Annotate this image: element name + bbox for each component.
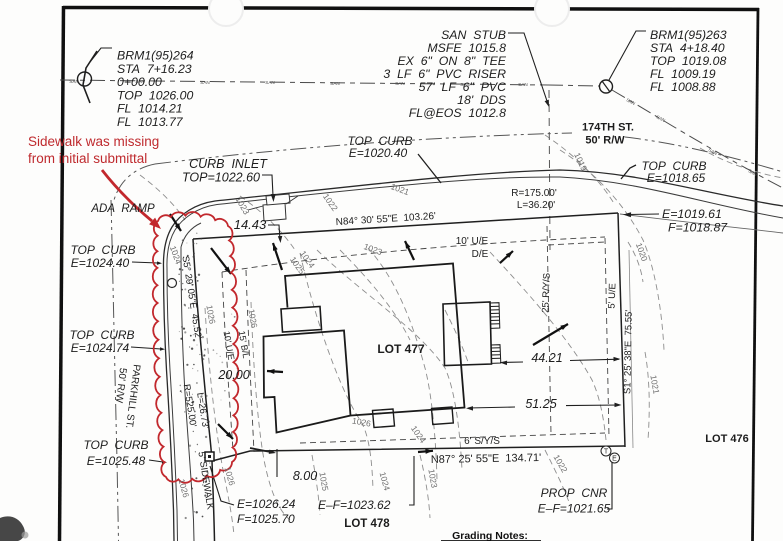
svg-text:T: T — [604, 449, 609, 456]
svg-text:Sidewalk was missing: Sidewalk was missing — [28, 134, 159, 149]
svg-text:EX 6" ON 8" TEE: EX 6" ON 8" TEE — [397, 54, 506, 68]
svg-text:TOP CURB: TOP CURB — [70, 243, 135, 257]
svg-text:SAN: SAN — [395, 81, 404, 86]
svg-text:174TH ST.: 174TH ST. — [582, 122, 634, 134]
svg-text:from initial submittal: from initial submittal — [28, 151, 147, 166]
svg-text:LOT 476: LOT 476 — [705, 433, 748, 445]
svg-text:R=175.00': R=175.00' — [511, 188, 557, 199]
svg-text:SAN: SAN — [518, 82, 527, 87]
svg-text:TOP CURB: TOP CURB — [69, 328, 134, 342]
svg-text:E=1024.74: E=1024.74 — [71, 341, 130, 355]
svg-text:5' U/E: 5' U/E — [607, 283, 619, 309]
svg-text:F=1025.70: F=1025.70 — [237, 512, 295, 526]
svg-text:14.43: 14.43 — [234, 217, 267, 232]
svg-text:N87° 25' 55"E 134.71': N87° 25' 55"E 134.71' — [431, 452, 542, 466]
svg-text:18' DDS: 18' DDS — [457, 93, 507, 107]
svg-text:CURB INLET: CURB INLET — [189, 157, 268, 171]
svg-text:SAN: SAN — [200, 80, 209, 85]
svg-text:50' R/W: 50' R/W — [585, 135, 625, 147]
svg-text:E–F=1023.62: E–F=1023.62 — [318, 498, 391, 512]
svg-text:ADA RAMP: ADA RAMP — [90, 203, 155, 215]
svg-text:BRM1(95)264: BRM1(95)264 — [117, 49, 194, 63]
svg-text:LOT 478: LOT 478 — [344, 518, 390, 530]
svg-text:S1° 25' 38"E 75.55': S1° 25' 38"E 75.55' — [622, 310, 634, 395]
svg-text:D/E: D/E — [472, 249, 489, 260]
svg-text:E=1025.48: E=1025.48 — [87, 454, 146, 468]
svg-text:44.21: 44.21 — [531, 351, 562, 365]
svg-text:FL 1008.88: FL 1008.88 — [650, 80, 716, 94]
svg-text:25' R/Y/S: 25' R/Y/S — [540, 273, 552, 313]
svg-text:MSFE 1015.8: MSFE 1015.8 — [427, 41, 506, 55]
svg-text:E–F=1021.65: E–F=1021.65 — [538, 502, 611, 516]
svg-text:57' LF 6" PVC: 57' LF 6" PVC — [419, 80, 506, 94]
svg-text:LOT 477: LOT 477 — [377, 342, 425, 356]
svg-text:TOP CURB: TOP CURB — [83, 438, 148, 452]
svg-text:FL 1013.77: FL 1013.77 — [117, 115, 184, 129]
svg-text:E=1019.61: E=1019.61 — [662, 207, 722, 221]
svg-text:FL 1014.21: FL 1014.21 — [117, 102, 183, 116]
svg-text:Grading Notes:: Grading Notes: — [452, 530, 528, 541]
svg-text:E=1024.40: E=1024.40 — [71, 256, 130, 270]
svg-text:E=1018.65: E=1018.65 — [647, 171, 706, 185]
svg-text:STA 4+18.40: STA 4+18.40 — [650, 41, 725, 55]
svg-text:10' U/E: 10' U/E — [456, 236, 489, 247]
svg-text:STA 7+16.23: STA 7+16.23 — [117, 62, 192, 76]
svg-text:BRM1(95)263: BRM1(95)263 — [650, 28, 727, 42]
svg-text:51.25: 51.25 — [525, 397, 556, 411]
svg-text:TOP=1022.60: TOP=1022.60 — [182, 171, 260, 185]
svg-text:E=1026.24: E=1026.24 — [237, 497, 296, 511]
svg-text:SAN: SAN — [265, 80, 274, 85]
svg-text:8.00: 8.00 — [293, 469, 317, 483]
svg-text:PROP CNR: PROP CNR — [541, 486, 608, 500]
svg-text:TOP 1019.08: TOP 1019.08 — [650, 54, 727, 68]
svg-text:3 LF 6" PVC RISER: 3 LF 6" PVC RISER — [383, 67, 506, 81]
svg-text:SAN STUB: SAN STUB — [441, 28, 506, 42]
svg-text:0+00.00: 0+00.00 — [117, 75, 162, 89]
svg-text:E: E — [612, 456, 617, 463]
svg-text:FL@EOS 1012.8: FL@EOS 1012.8 — [409, 106, 506, 120]
svg-text:SAN: SAN — [330, 81, 339, 86]
svg-text:6' S/Y/S: 6' S/Y/S — [464, 436, 500, 447]
svg-text:FL 1009.19: FL 1009.19 — [650, 67, 716, 81]
svg-text:F=1018.87: F=1018.87 — [668, 221, 728, 235]
svg-text:TOP 1026.00: TOP 1026.00 — [117, 88, 194, 102]
svg-text:L=36.20': L=36.20' — [517, 200, 555, 211]
svg-text:20.00: 20.00 — [217, 368, 249, 382]
svg-text:E=1020.40: E=1020.40 — [349, 146, 408, 160]
